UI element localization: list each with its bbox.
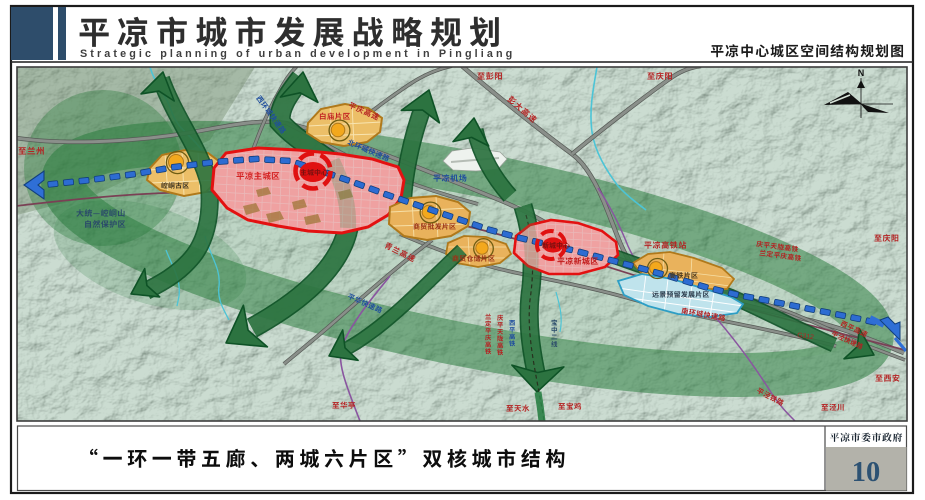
svg-text:10: 10 [852,457,881,488]
svg-text:N: N [858,68,865,78]
svg-text:Strategic planning of urban de: Strategic planning of urban development … [80,48,515,60]
